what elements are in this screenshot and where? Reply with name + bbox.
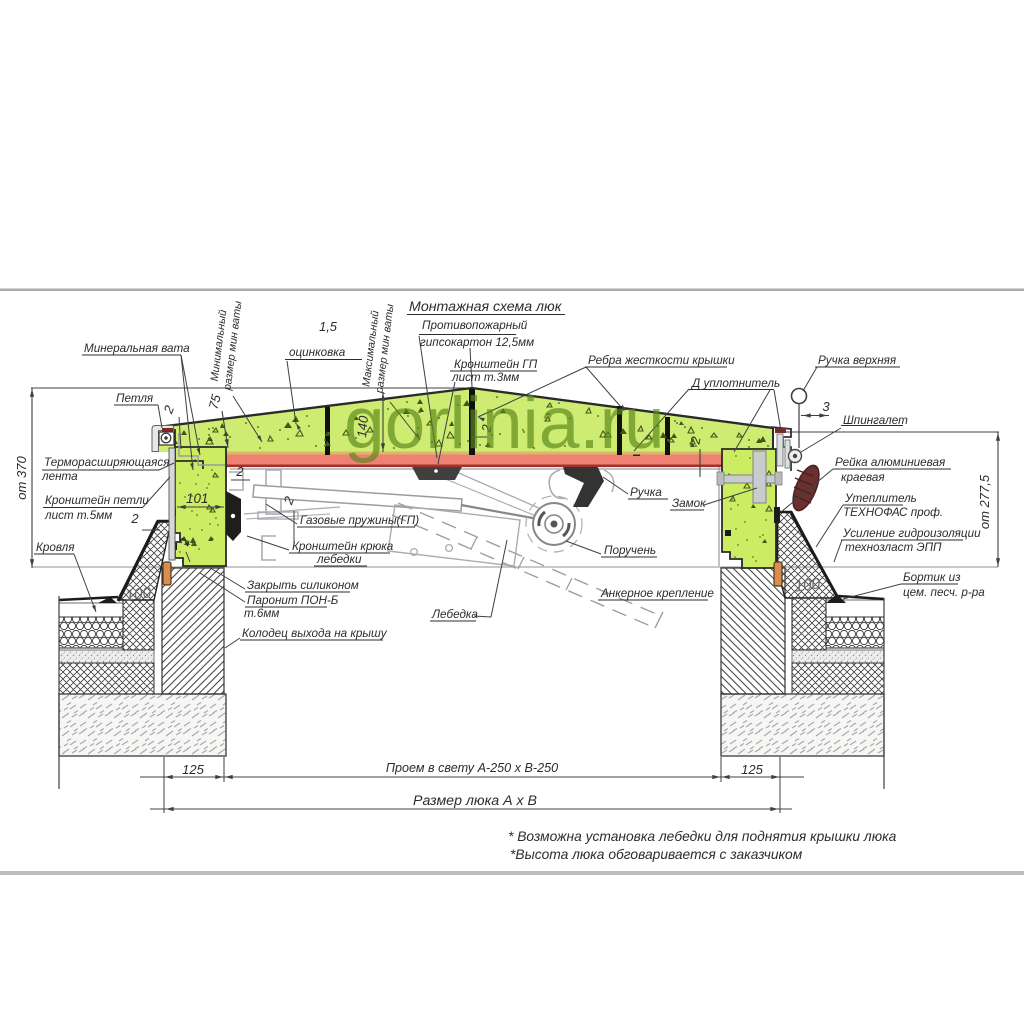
svg-text:оцинковка: оцинковка (289, 346, 346, 359)
svg-text:Проем в свету А-250 х В-250: Проем в свету А-250 х В-250 (386, 761, 558, 775)
svg-text:Минеральная вата: Минеральная вата (84, 342, 190, 355)
svg-text:Ребра жесткости крышки: Ребра жесткости крышки (588, 354, 735, 367)
svg-text:3: 3 (822, 399, 830, 414)
svg-text:100: 100 (793, 575, 821, 595)
svg-text:Анкерное крепление: Анкерное крепление (600, 587, 714, 600)
svg-text:*Высота люка обговаривается с: *Высота люка обговаривается с заказчиком (510, 847, 803, 862)
svg-text:Замок: Замок (672, 497, 706, 510)
svg-text:гипсокартон 12,5мм: гипсокартон 12,5мм (420, 336, 534, 349)
svg-text:Лебедка: Лебедка (431, 608, 478, 621)
svg-text:Кронштейн петли: Кронштейн петли (45, 494, 149, 507)
svg-text:Усиление гидроизоляции: Усиление гидроизоляции (842, 527, 981, 540)
svg-text:2: 2 (130, 511, 139, 526)
svg-text:gorlinia.ru: gorlinia.ru (344, 383, 665, 464)
svg-text:цем. песч. р-ра: цем. песч. р-ра (903, 586, 985, 599)
svg-text:2: 2 (235, 464, 244, 479)
svg-text:Бортик из: Бортик из (903, 571, 961, 584)
svg-text:Д уплотнитель: Д уплотнитель (690, 377, 780, 390)
svg-text:101: 101 (186, 491, 208, 506)
svg-text:т.6мм: т.6мм (244, 607, 279, 620)
svg-text:Рейка алюминиевая: Рейка алюминиевая (835, 456, 946, 469)
svg-text:Ручка верхняя: Ручка верхняя (818, 354, 897, 367)
svg-text:Петля: Петля (116, 392, 154, 405)
svg-text:100: 100 (124, 584, 152, 604)
svg-text:от 277,5: от 277,5 (977, 474, 992, 529)
svg-text:Монтажная схема люк: Монтажная схема люк (409, 299, 563, 315)
svg-text:Противопожарный: Противопожарный (422, 319, 528, 332)
svg-text:лента: лента (41, 470, 78, 483)
svg-text:* Возможна установка лебедки д: * Возможна установка лебедки для подняти… (508, 829, 897, 844)
svg-text:лебедки: лебедки (316, 553, 362, 566)
svg-text:Кронштейн крюка: Кронштейн крюка (292, 540, 394, 553)
svg-text:технозласт ЭПП: технозласт ЭПП (845, 541, 942, 554)
svg-text:125: 125 (182, 762, 204, 777)
svg-text:от 370: от 370 (14, 456, 29, 500)
svg-text:Терморасширяющаяся: Терморасширяющаяся (44, 456, 170, 469)
svg-text:ТЕХНОФАС проф.: ТЕХНОФАС проф. (843, 506, 943, 519)
svg-text:Поручень: Поручень (604, 544, 656, 557)
svg-text:Паронит ПОН-Б: Паронит ПОН-Б (247, 594, 339, 607)
svg-text:125: 125 (741, 762, 763, 777)
svg-text:Закрыть силиконом: Закрыть силиконом (247, 579, 359, 592)
svg-text:Газовые пружины(ГП): Газовые пружины(ГП) (300, 514, 419, 527)
svg-text:Утеплитель: Утеплитель (844, 492, 917, 505)
svg-text:1,5: 1,5 (319, 319, 338, 334)
svg-text:Ручка: Ручка (630, 486, 662, 499)
svg-text:Кронштейн ГП: Кронштейн ГП (454, 358, 538, 371)
svg-text:лист т.5мм: лист т.5мм (44, 509, 112, 522)
svg-text:Колодец выхода на крышу: Колодец выхода на крышу (242, 627, 388, 640)
svg-text:Размер люка А х В: Размер люка А х В (413, 793, 537, 809)
svg-text:краевая: краевая (841, 471, 885, 484)
svg-text:Кровля: Кровля (36, 541, 75, 554)
